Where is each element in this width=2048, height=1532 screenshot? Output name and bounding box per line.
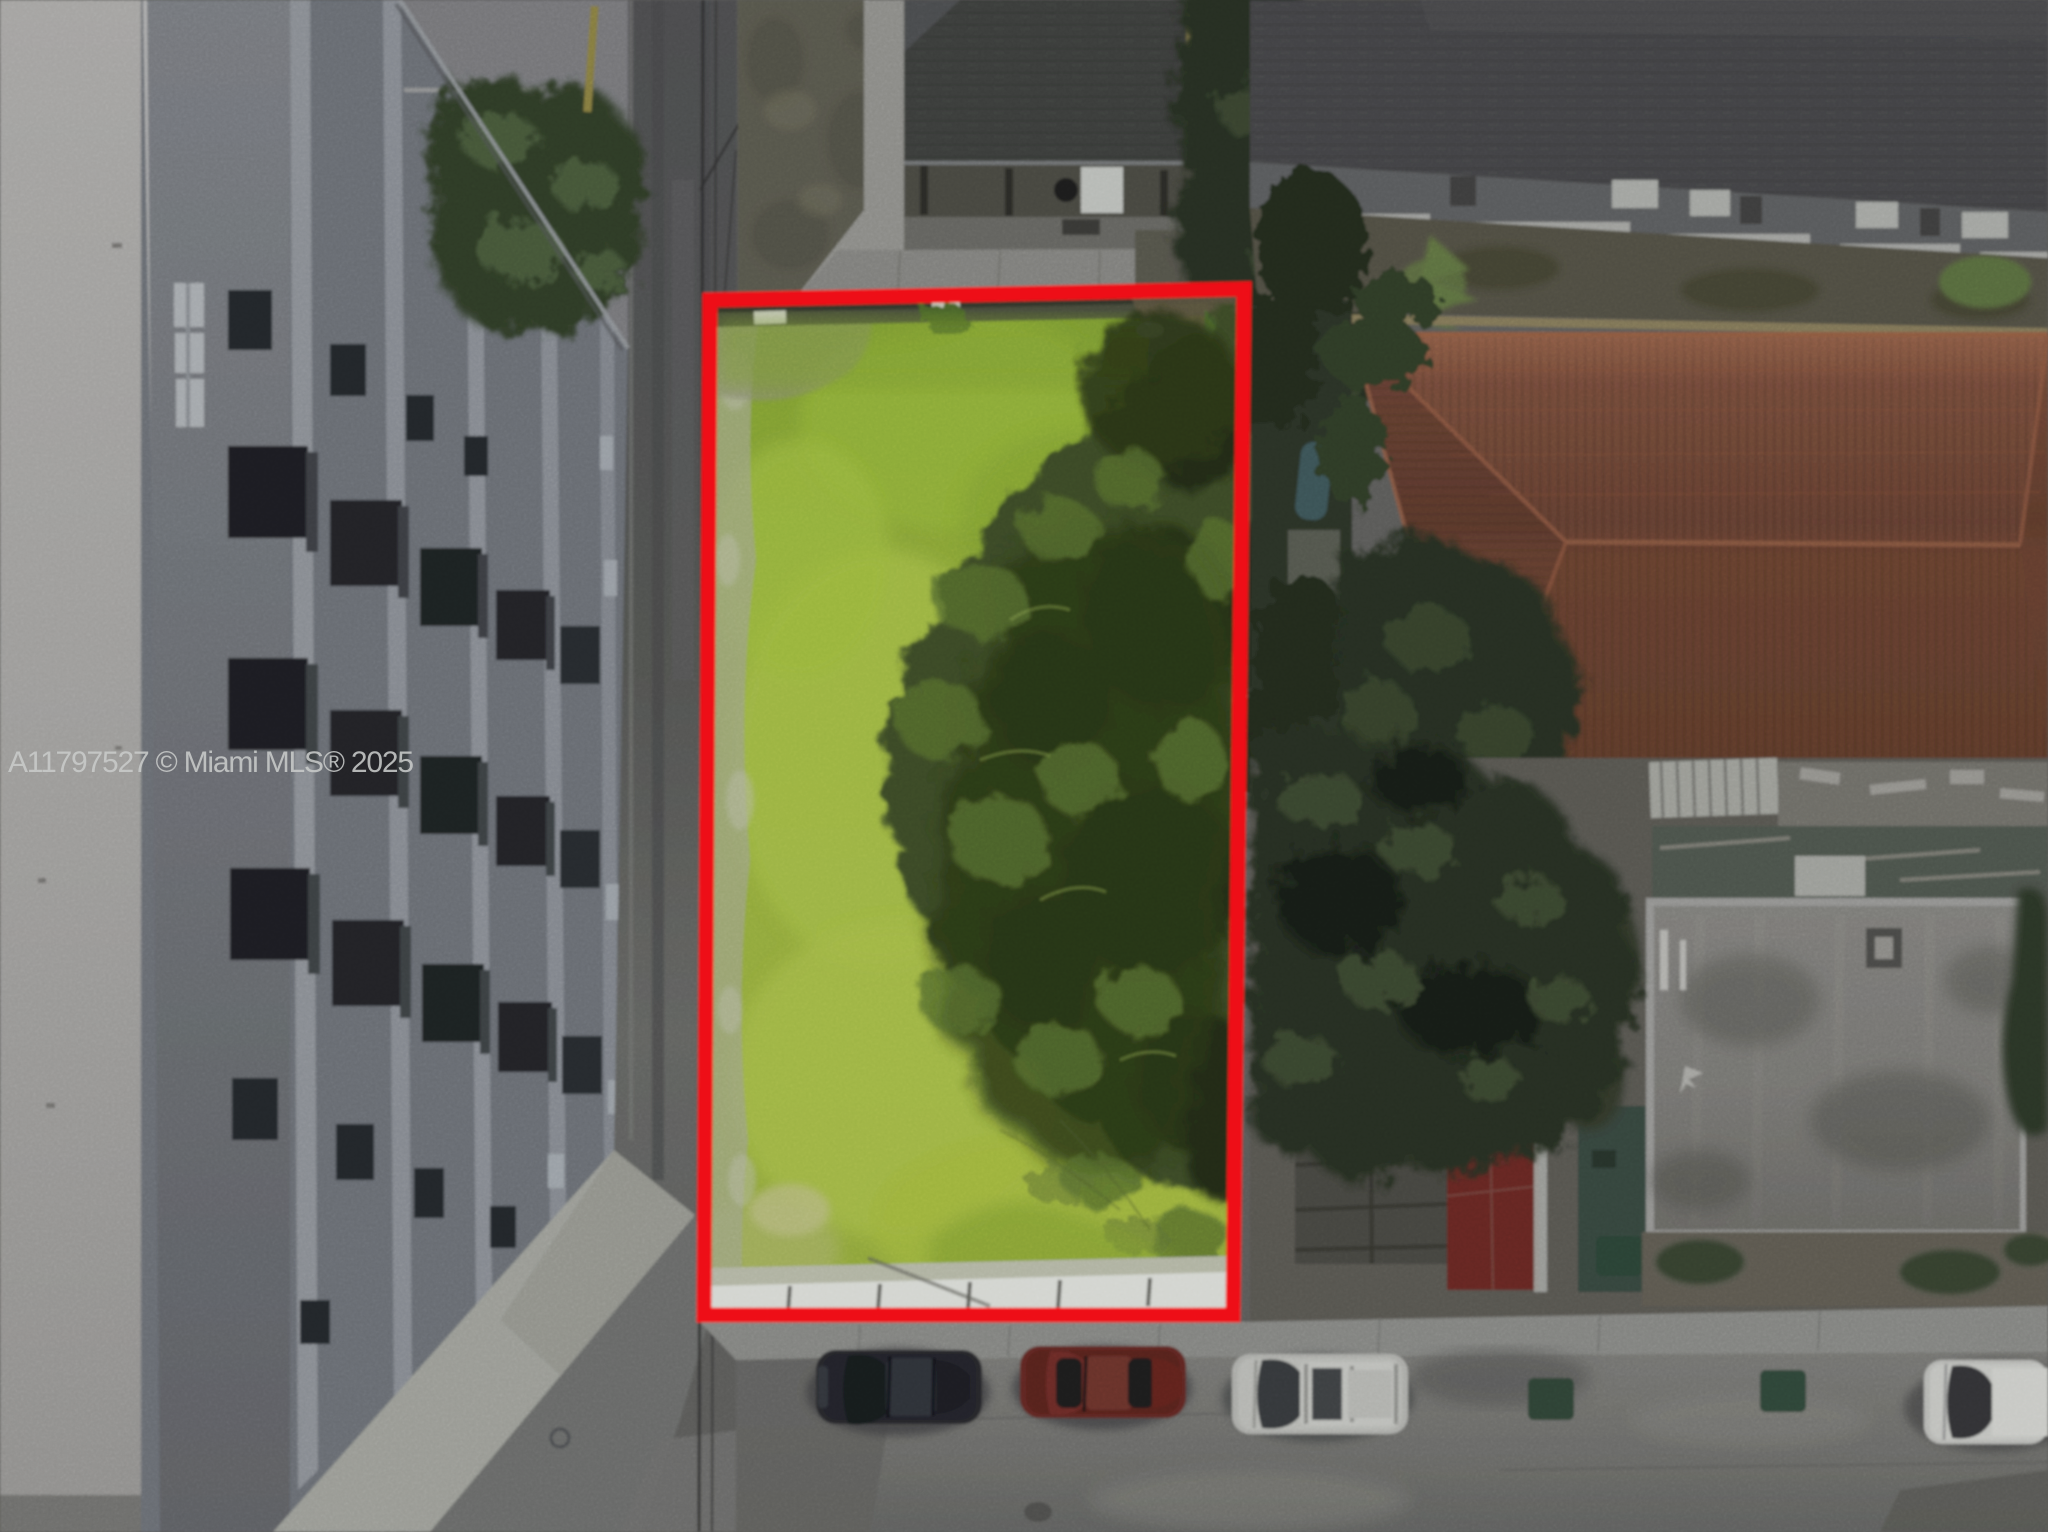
svg-text:A11797527 © Miami MLS® 2025: A11797527 © Miami MLS® 2025 (8, 746, 413, 779)
